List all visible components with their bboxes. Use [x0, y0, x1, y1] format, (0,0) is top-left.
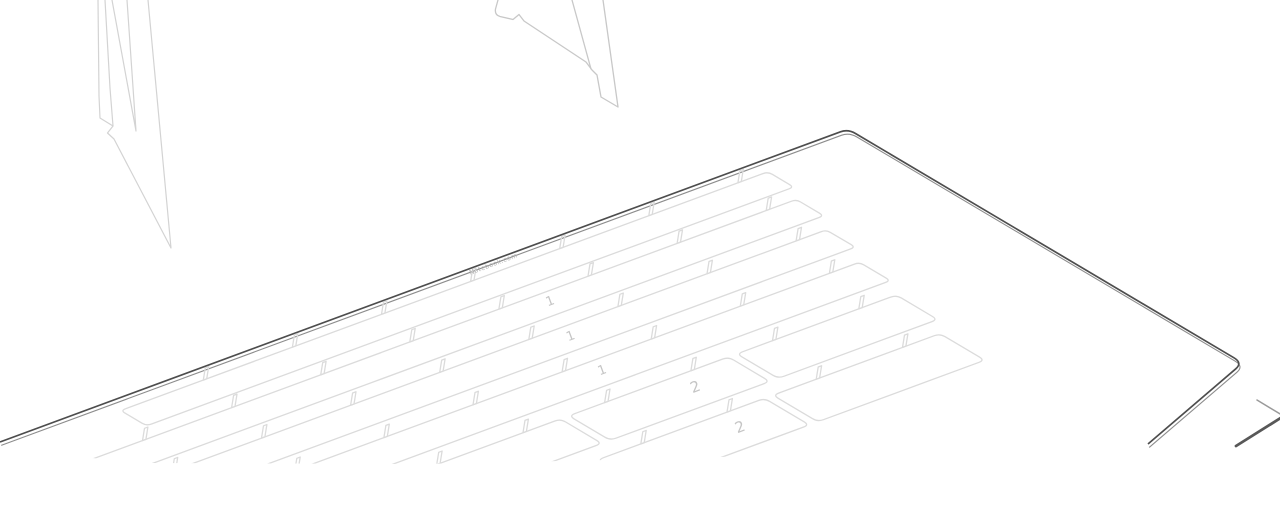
template-key-piece	[600, 400, 806, 486]
adjacent-sheet-corner	[1236, 400, 1280, 446]
template-strip-piece	[78, 200, 821, 480]
template-key-piece	[776, 335, 982, 421]
stand-leg-piece-center-outline	[495, 0, 618, 107]
template-strip-piece	[46, 231, 853, 520]
adjacent-sheet-corner-lower-edge	[1236, 417, 1280, 447]
illustration-canvas: 11122 Notebook.com	[0, 0, 1280, 520]
stand-leg-piece-left-inner-line	[105, 0, 113, 126]
keyboard-template-rows	[0, 169, 982, 520]
flat-pack-laptop-wireframe-drawing: 11122 Notebook.com	[0, 0, 1280, 520]
piece-number-label: 2	[688, 377, 703, 397]
piece-number-label: 2	[732, 417, 747, 437]
strip-tab-cutout	[206, 490, 211, 504]
piece-number-label: 1	[596, 362, 609, 379]
stand-leg-piece-left-slot	[112, 0, 136, 131]
template-key-piece	[740, 296, 935, 377]
key-tab-cutout	[465, 495, 470, 509]
strip-tab-cutout	[172, 457, 177, 471]
strip-tab-cutout	[295, 457, 300, 471]
stand-leg-piece-left	[98, 0, 171, 248]
piece-number-label: 1	[564, 328, 577, 345]
adjacent-sheet-corner-upper-edge	[1257, 400, 1280, 415]
flat-sheet	[0, 131, 1240, 448]
strip-tab-cutout	[83, 490, 88, 504]
stand-leg-piece-center	[495, 0, 618, 107]
template-key-piece	[425, 464, 631, 520]
template-key-piece	[404, 420, 599, 501]
key-tab-cutout	[269, 513, 274, 520]
key-tab-cutout	[355, 481, 360, 495]
key-tab-cutout	[552, 463, 557, 477]
template-key-piece	[236, 482, 431, 520]
piece-number-label: 1	[544, 293, 557, 310]
